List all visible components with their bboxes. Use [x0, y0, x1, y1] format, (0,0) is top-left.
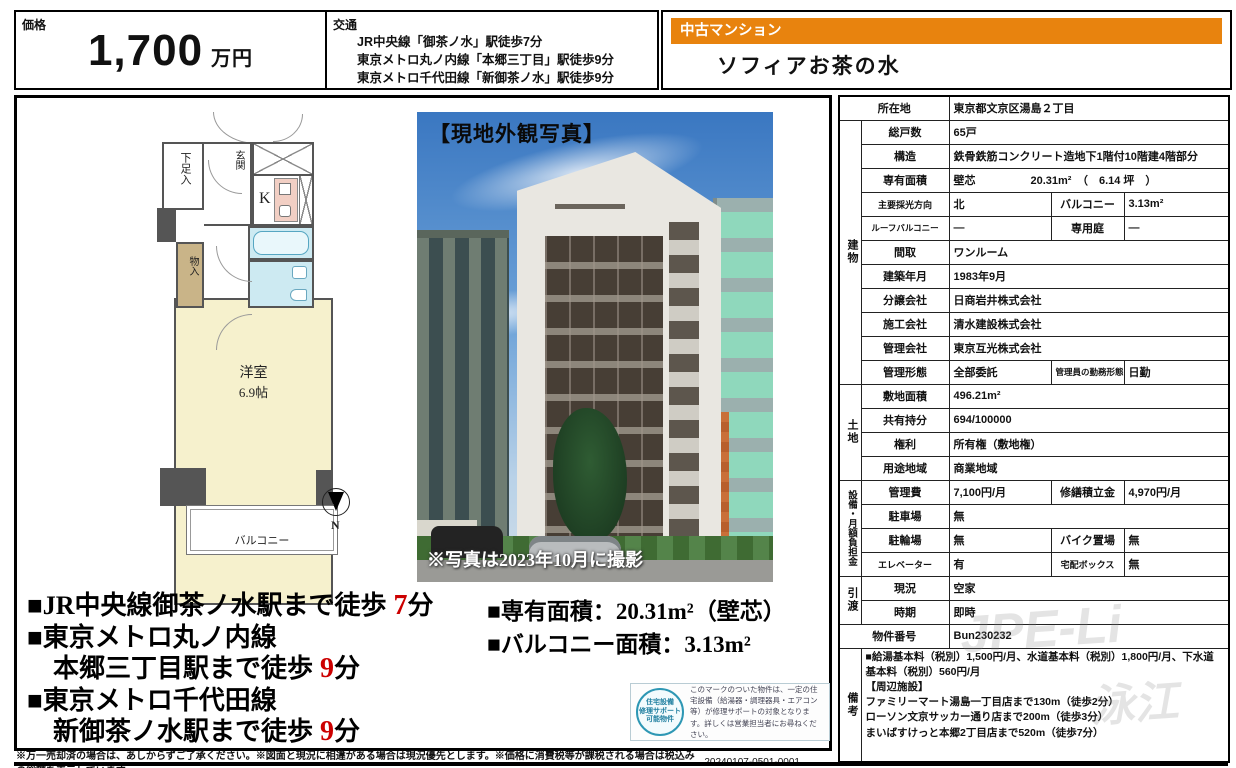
group-label: 建物 [839, 120, 861, 384]
area-line: ■バルコニー面積：3.13m² [487, 628, 786, 661]
spec-value: 有 [949, 552, 1051, 576]
spec-value: 清水建設株式会社 [949, 312, 1229, 336]
floorplan-storage: 物入 [176, 242, 204, 308]
highlight-line: ■JR中央線御茶ノ水駅まで徒歩 7分 [27, 590, 487, 623]
spec-label: 管理会社 [861, 336, 949, 360]
spec-row: 分譲会社日商岩井株式会社 [839, 288, 1229, 312]
spec-value: 壁芯 20.31m² （ 6.14 坪 ） [949, 168, 1229, 192]
spec-row: 建物総戸数65戸 [839, 120, 1229, 144]
highlight-line: 本郷三丁目駅まで徒歩 9分 [27, 653, 487, 686]
spec-label: 総戸数 [861, 120, 949, 144]
price-transit-box: 価格 1,700万円 交通 JR中央線「御茶ノ水」駅徒歩7分東京メトロ丸ノ内線「… [14, 10, 659, 90]
spec-value: 北 [949, 192, 1051, 216]
bathtub-icon [253, 231, 309, 255]
door-arc-icon [208, 160, 242, 194]
spec-label: 分譲会社 [861, 288, 949, 312]
photo-caption-top: 【現地外観写真】 [429, 118, 605, 148]
highlight-areas: ■専有面積：20.31m²（壁芯）■バルコニー面積：3.13m² [487, 595, 786, 662]
compass-n-label: N [331, 518, 340, 533]
spec-label: エレベーター [861, 552, 949, 576]
spec-value: ― [949, 216, 1051, 240]
spec-value: 65戸 [949, 120, 1229, 144]
area-line: ■専有面積：20.31m²（壁芯） [487, 595, 786, 628]
spec-value: 7,100円/月 [949, 480, 1051, 504]
transit-cell: 交通 JR中央線「御茶ノ水」駅徒歩7分東京メトロ丸ノ内線「本郷三丁目」駅徒歩9分… [327, 12, 657, 88]
spec-value: 496.21m² [949, 384, 1229, 408]
spec-label2: 修繕積立金 [1051, 480, 1124, 504]
spec-value2: 3.13m² [1124, 192, 1229, 216]
remarks-line: まいばすけっと本郷2丁目店まで520m（徒歩7分） [866, 726, 1225, 741]
spec-value2: 無 [1124, 552, 1229, 576]
spec-row: 共有持分694/100000 [839, 408, 1229, 432]
pipe-shaft [299, 176, 312, 224]
spec-value2: 無 [1124, 528, 1229, 552]
group-label: 土地 [839, 384, 861, 480]
highlight-line: 新御茶ノ水駅まで徒歩 9分 [27, 716, 487, 749]
spec-label: 駐車場 [861, 504, 949, 528]
spec-label: 管理費 [861, 480, 949, 504]
spec-value2: ― [1124, 216, 1229, 240]
bottom-border-bar [14, 762, 1228, 766]
spec-label2: 管理員の勤務形態 [1051, 360, 1124, 384]
remarks-line: ■給湯基本料（税別）1,500円/月、水道基本料（税別）1,800円/月、下水道… [866, 650, 1225, 680]
badge-description: このマークのついた物件は、一定の住宅設備（給湯器・調理器具・エアコン等）が修理サ… [690, 684, 824, 740]
kitchen-counter [274, 178, 298, 222]
price-value: 1,700万円 [16, 26, 325, 76]
spec-value: 日商岩井株式会社 [949, 288, 1229, 312]
spec-row: 主要採光方向北バルコニー3.13m² [839, 192, 1229, 216]
spec-row: 管理会社東京互光株式会社 [839, 336, 1229, 360]
remarks-line: ファミリーマート湯島一丁目店まで130m（徒歩2分） [866, 695, 1225, 710]
spec-label: 物件番号 [839, 624, 949, 648]
spec-value: 全部委託 [949, 360, 1051, 384]
spec-row: 構造鉄骨鉄筋コンクリート造地下1階付10階建4階部分 [839, 144, 1229, 168]
spec-label: 現況 [861, 576, 949, 600]
remarks-cell: ■給湯基本料（税別）1,500円/月、水道基本料（税別）1,800円/月、下水道… [861, 648, 1229, 762]
spec-label: 構造 [861, 144, 949, 168]
spec-row: 駐車場無 [839, 504, 1229, 528]
spec-label: 専有面積 [861, 168, 949, 192]
floorplan-shoe-closet: 下足入 [162, 142, 204, 210]
spec-label2: 宅配ボックス [1051, 552, 1124, 576]
spec-row: 物件番号Bun230232 [839, 624, 1229, 648]
spec-row: 設備・月額負担金管理費7,100円/月修繕積立金4,970円/月 [839, 480, 1229, 504]
spec-row: 引渡現況空家 [839, 576, 1229, 600]
wall-block [157, 208, 176, 242]
spec-table: 所在地東京都文京区湯島２丁目建物総戸数65戸構造鉄骨鉄筋コンクリート造地下1階付… [838, 95, 1230, 763]
spec-value: 無 [949, 528, 1051, 552]
spec-value: 東京互光株式会社 [949, 336, 1229, 360]
title-box: 中古マンション ソフィアお茶の水 [661, 10, 1232, 90]
spec-row: 間取ワンルーム [839, 240, 1229, 264]
transit-line: 東京メトロ丸ノ内線「本郷三丁目」駅徒歩9分 [357, 51, 614, 69]
spec-label2: バルコニー [1051, 192, 1124, 216]
highlight-transit: ■JR中央線御茶ノ水駅まで徒歩 7分■東京メトロ丸ノ内線 本郷三丁目駅まで徒歩 … [27, 590, 487, 749]
transit-lines: JR中央線「御茶ノ水」駅徒歩7分東京メトロ丸ノ内線「本郷三丁目」駅徒歩9分東京メ… [357, 33, 614, 87]
spec-row: ルーフバルコニー―専用庭― [839, 216, 1229, 240]
storage-label: 物入 [185, 256, 200, 276]
wall-block [160, 468, 206, 506]
spec-row: 権利所有権（敷地権） [839, 432, 1229, 456]
spec-label: 施工会社 [861, 312, 949, 336]
group-label: 引渡 [839, 576, 861, 624]
door-arc-icon [273, 114, 303, 142]
toilet-icon [290, 289, 307, 301]
floorplan-bath [248, 226, 314, 260]
room-label: 洋室 [176, 362, 331, 382]
floorplan-balcony: バルコニー [186, 505, 338, 555]
spec-label: 駐輪場 [861, 528, 949, 552]
spec-row: 建築年月1983年9月 [839, 264, 1229, 288]
spec-value: 所有権（敷地権） [949, 432, 1229, 456]
spec-row: 所在地東京都文京区湯島２丁目 [839, 96, 1229, 120]
spec-label: ルーフバルコニー [861, 216, 949, 240]
property-title: ソフィアお茶の水 [717, 50, 901, 80]
spec-row: 土地敷地面積496.21m² [839, 384, 1229, 408]
stove-icon [279, 205, 291, 217]
remarks-line: ローソン文京サッカー通り店まで200m（徒歩3分） [866, 710, 1225, 725]
kitchen-label: K [259, 190, 271, 208]
highlight-line: ■東京メトロ丸ノ内線 [27, 623, 487, 653]
door-arc-icon [216, 246, 252, 282]
balcony-label: バルコニー [187, 532, 337, 548]
walk-minutes-red: 9 [313, 716, 334, 747]
spec-row: 備考■給湯基本料（税別）1,500円/月、水道基本料（税別）1,800円/月、下… [839, 648, 1229, 762]
spec-value: 即時 [949, 600, 1229, 624]
shoe-closet-label: 下足入 [177, 152, 193, 185]
walk-minutes-red: 9 [313, 653, 334, 684]
exterior-photo: 【現地外観写真】 ※写真は2023年10月に撮影 [417, 112, 773, 582]
spec-value: 694/100000 [949, 408, 1229, 432]
spec-row: 駐輪場無バイク置場無 [839, 528, 1229, 552]
remarks-line: 【周辺施設】 [866, 680, 1225, 695]
spec-row: 管理形態全部委託管理員の勤務形態日勤 [839, 360, 1229, 384]
seal-text: 住宅設備修理サポート可能物件 [639, 699, 681, 725]
transit-label: 交通 [333, 16, 357, 33]
main-box: 洋室 6.9帖 下足入 玄関 K [14, 95, 832, 751]
floorplan-entrance: 玄関 [204, 142, 252, 226]
transit-line: 東京メトロ千代田線「新御茶ノ水」駅徒歩9分 [357, 69, 614, 87]
spec-label: 主要採光方向 [861, 192, 949, 216]
spec-label2: バイク置場 [1051, 528, 1124, 552]
spec-label: 時期 [861, 600, 949, 624]
spec-value: 鉄骨鉄筋コンクリート造地下1階付10階建4階部分 [949, 144, 1229, 168]
floorplan-kitchen: K [252, 176, 314, 226]
price-unit: 万円 [211, 48, 253, 70]
support-badge: 住宅設備修理サポート可能物件 このマークのついた物件は、一定の住宅設備（給湯器・… [630, 683, 830, 741]
highlight-line: ■東京メトロ千代田線 [27, 686, 487, 716]
spec-value: 空家 [949, 576, 1229, 600]
spec-value: 商業地域 [949, 456, 1229, 480]
building-main-side-windows [669, 222, 699, 582]
spec-row: 用途地域商業地域 [839, 456, 1229, 480]
spec-value: ワンルーム [949, 240, 1229, 264]
walk-minutes-red: 7 [386, 590, 407, 621]
spec-value: Bun230232 [949, 624, 1229, 648]
floorplan-shaft-box [252, 142, 314, 176]
washbasin-icon [292, 266, 307, 279]
floorplan-washroom [248, 260, 314, 308]
spec-label: 間取 [861, 240, 949, 264]
spec-row: 施工会社清水建設株式会社 [839, 312, 1229, 336]
spec-value: 1983年9月 [949, 264, 1229, 288]
spec-row: 専有面積壁芯 20.31m² （ 6.14 坪 ） [839, 168, 1229, 192]
spec-value2: 4,970円/月 [1124, 480, 1229, 504]
spec-value: 東京都文京区湯島２丁目 [949, 96, 1229, 120]
group-label: 設備・月額負担金 [839, 480, 861, 576]
spec-label: 所在地 [839, 96, 949, 120]
support-seal-icon: 住宅設備修理サポート可能物件 [636, 688, 684, 736]
spec-label: 建築年月 [861, 264, 949, 288]
spec-label2: 専用庭 [1051, 216, 1124, 240]
spec-label: 敷地面積 [861, 384, 949, 408]
spec-value2: 日勤 [1124, 360, 1229, 384]
spec-label: 管理形態 [861, 360, 949, 384]
group-label: 備考 [839, 648, 861, 762]
compass-needle-icon [328, 492, 344, 511]
spec-label: 権利 [861, 432, 949, 456]
spec-label: 共有持分 [861, 408, 949, 432]
room-size-label: 6.9帖 [176, 382, 331, 401]
sink-icon [279, 183, 291, 195]
door-arc-icon [213, 112, 257, 144]
property-type-banner: 中古マンション [671, 18, 1222, 44]
floorplan-room-western: 洋室 6.9帖 [174, 298, 333, 605]
roof-detail [555, 204, 625, 209]
spec-row: エレベーター有宅配ボックス無 [839, 552, 1229, 576]
compass-circle-icon [322, 488, 350, 516]
flyer-page: 価格 1,700万円 交通 JR中央線「御茶ノ水」駅徒歩7分東京メトロ丸ノ内線「… [0, 0, 1236, 768]
price-cell: 価格 1,700万円 [16, 12, 327, 88]
spec-row: 時期即時 [839, 600, 1229, 624]
spec-label: 用途地域 [861, 456, 949, 480]
transit-line: JR中央線「御茶ノ水」駅徒歩7分 [357, 33, 614, 51]
spec-value: 無 [949, 504, 1229, 528]
photo-caption-bottom: ※写真は2023年10月に撮影 [427, 546, 643, 572]
